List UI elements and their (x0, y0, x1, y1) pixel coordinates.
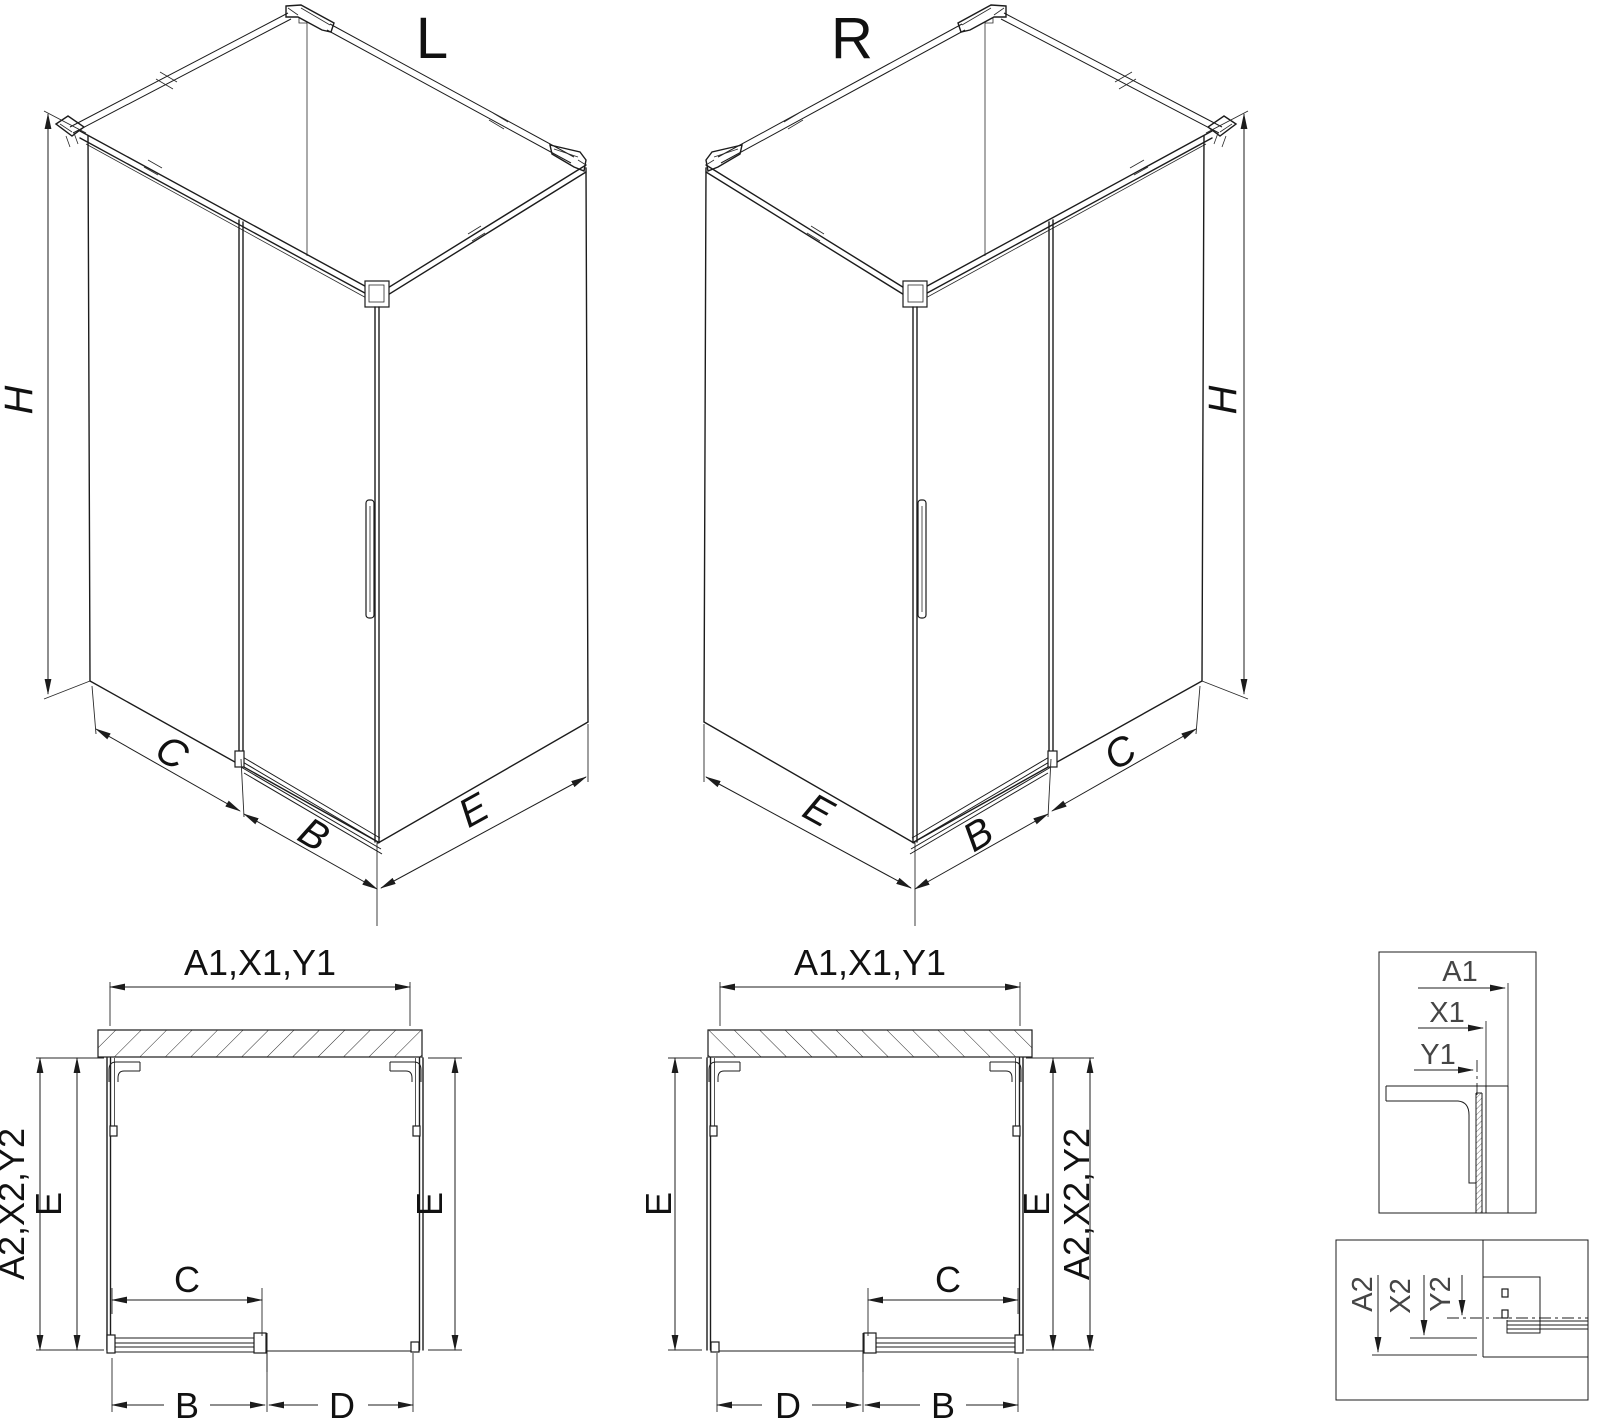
detail-x2-label: X2 (1385, 1278, 1417, 1313)
plan-right-e-left-label: E (638, 1192, 679, 1216)
detail-depth-notch-a (1502, 1289, 1508, 1297)
detail-a2-label: A2 (1347, 1276, 1379, 1311)
dim-label-c-left: C (148, 727, 196, 780)
plan-right-d-label: D (775, 1385, 801, 1423)
detail-a1-label: A1 (1442, 956, 1477, 988)
technical-drawing-page: L H C B E R H C B E A1,X1,Y1 A2,X2,Y2 E … (0, 0, 1600, 1423)
detail-depth-frame (1336, 1240, 1588, 1400)
detail-y1-label: Y1 (1420, 1039, 1455, 1071)
plan-right-c-label: C (935, 1259, 961, 1300)
plan-right-e-right-label: E (1016, 1192, 1057, 1216)
detail-glass-hatch (1476, 1093, 1482, 1213)
detail-wall-profile (1386, 1086, 1508, 1183)
plan-left-b-label: B (175, 1385, 199, 1423)
detail-depth-notch-b (1502, 1310, 1508, 1318)
dim-label-b-right: B (956, 809, 1002, 860)
detail-y2-label: Y2 (1425, 1276, 1457, 1311)
detail-view-width (1379, 952, 1536, 1213)
shower-enclosure-drawing: L H C B E R H C B E A1,X1,Y1 A2,X2,Y2 E … (0, 0, 1600, 1423)
plan-right-depth-label: A2,X2,Y2 (1056, 1128, 1097, 1280)
view-title-left: L (416, 6, 448, 71)
plan-left-width-label: A1,X1,Y1 (184, 942, 336, 983)
detail-view-depth (1336, 1240, 1588, 1400)
iso-view-right (704, 5, 1248, 926)
plan-left-c-label: C (174, 1259, 200, 1300)
dim-label-b-left: B (291, 809, 337, 860)
dim-label-h-left: H (0, 385, 41, 414)
dim-label-c-right: C (1097, 726, 1145, 779)
plan-left-e-right-label: E (409, 1192, 450, 1216)
plan-right-b-label: B (931, 1385, 955, 1423)
detail-depth-glass (1507, 1321, 1588, 1329)
iso-view-left (44, 5, 588, 926)
detail-depth-divider (1483, 1240, 1588, 1357)
detail-width-frame (1379, 952, 1536, 1213)
plan-left-d-label: D (329, 1385, 355, 1423)
detail-x1-label: X1 (1429, 997, 1464, 1029)
view-title-right: R (831, 6, 873, 71)
plan-view-left (36, 982, 462, 1423)
plan-right-width-label: A1,X1,Y1 (794, 942, 946, 983)
plan-left-e-left-label: E (28, 1192, 69, 1216)
dim-label-h-right: H (1201, 385, 1245, 414)
